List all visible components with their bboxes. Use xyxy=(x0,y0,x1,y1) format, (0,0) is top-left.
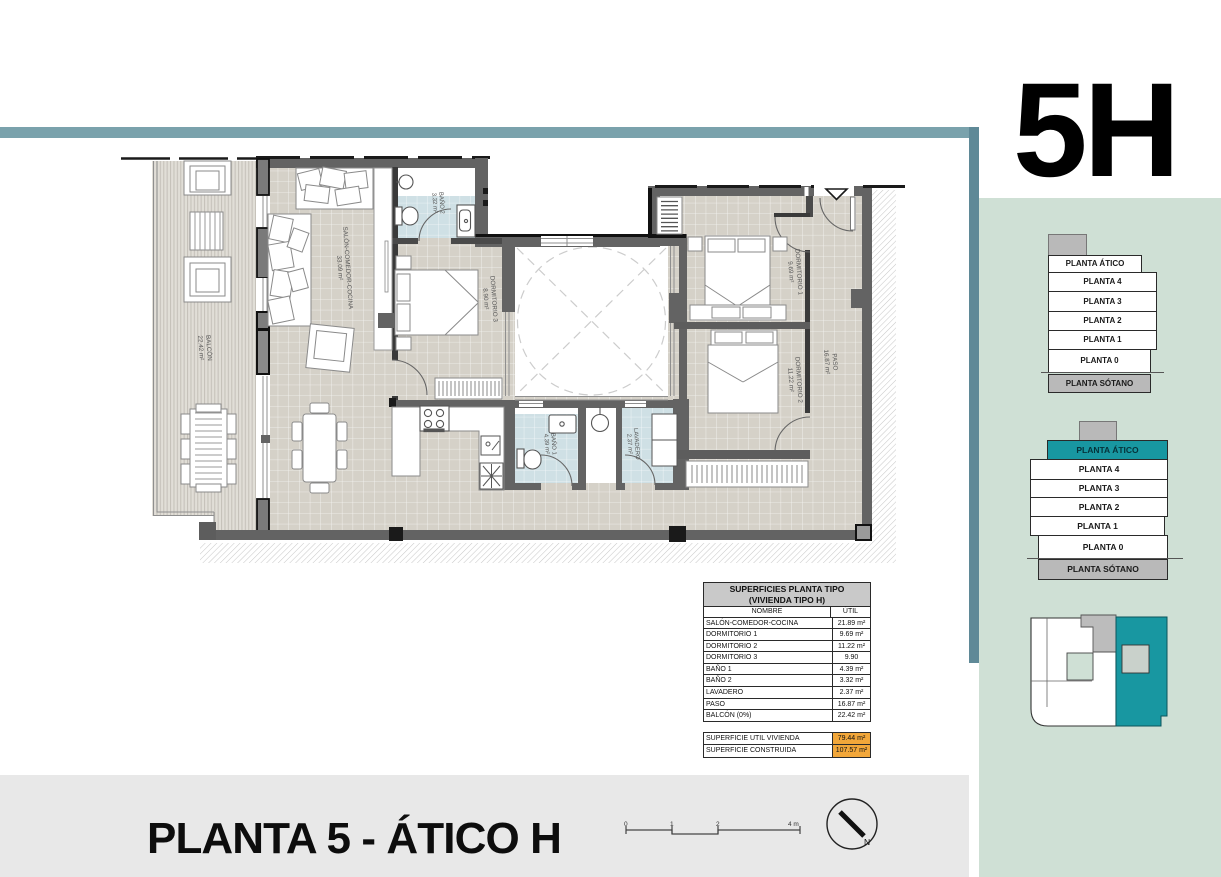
svg-text:N: N xyxy=(864,837,870,847)
svg-text:0: 0 xyxy=(624,821,628,828)
svg-text:4 m: 4 m xyxy=(788,821,799,828)
svg-text:2: 2 xyxy=(716,821,720,828)
svg-text:9.69 m²: 9.69 m² xyxy=(786,261,794,283)
svg-text:PASO: PASO xyxy=(830,353,838,371)
svg-text:8.90 m²: 8.90 m² xyxy=(481,288,489,310)
svg-text:1: 1 xyxy=(670,821,674,828)
